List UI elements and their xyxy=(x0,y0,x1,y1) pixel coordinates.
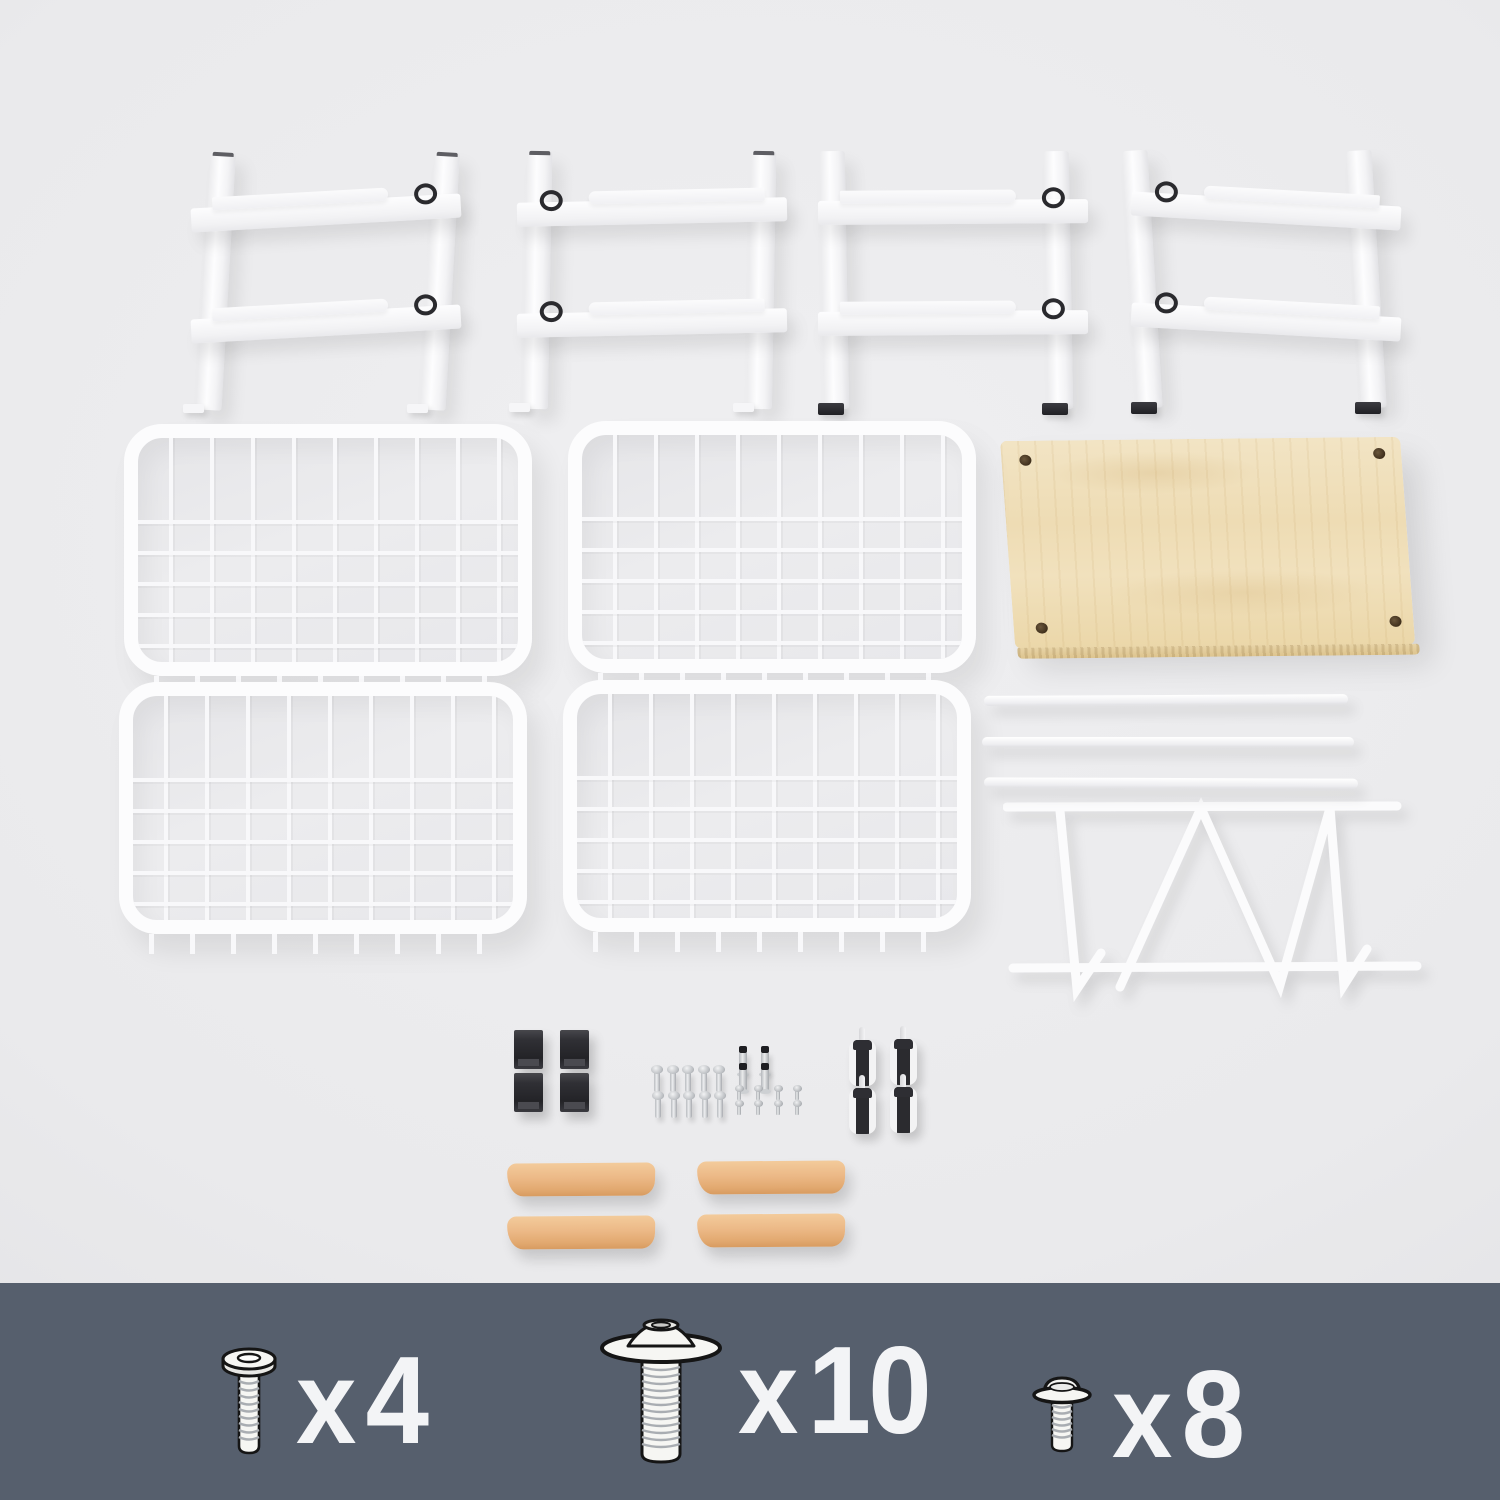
basket-slide-rail xyxy=(589,299,765,316)
legend-item-screw-x4: x 4 xyxy=(218,1339,438,1463)
wire-basket xyxy=(124,424,532,676)
screw-hole xyxy=(1019,455,1032,466)
crossbar-face xyxy=(517,197,787,227)
board-front-edge xyxy=(1017,644,1420,659)
frame-foot xyxy=(1042,403,1068,415)
basket-grid-wires xyxy=(138,520,518,662)
frame-leg xyxy=(1346,150,1386,409)
hook-ring-icon xyxy=(1042,187,1065,208)
basket-rim xyxy=(568,421,976,673)
hook-ring-icon xyxy=(1042,298,1065,319)
caster-wheel xyxy=(890,1087,917,1133)
machine-screw xyxy=(654,1072,660,1092)
wire-divider-rack xyxy=(1003,795,1423,1005)
legend-item-screw-x8: x 8 xyxy=(1030,1353,1254,1477)
hook-ring-icon xyxy=(1154,292,1178,314)
screw-hole xyxy=(1373,448,1386,459)
screw-hole xyxy=(1035,623,1048,634)
qty-count: 10 xyxy=(808,1329,929,1453)
qty-count: 4 xyxy=(366,1339,427,1463)
side-frame xyxy=(815,151,1091,415)
basket-rim xyxy=(124,424,532,676)
crossbar-face xyxy=(818,310,1088,336)
basket-slide-rail xyxy=(840,190,1016,204)
wood-handle xyxy=(507,1162,656,1196)
hardware-legend: x 4 x 10 xyxy=(0,1283,1500,1500)
basket-grid-wires xyxy=(577,776,957,918)
support-rail xyxy=(984,777,1358,788)
black-foot-cap xyxy=(514,1030,543,1069)
machine-screw xyxy=(701,1072,707,1092)
wire-basket xyxy=(119,682,527,934)
machine-screw xyxy=(670,1072,676,1092)
frame-foot xyxy=(1131,402,1157,414)
hook-ring-icon xyxy=(1154,181,1178,203)
crossbar-face xyxy=(517,308,787,338)
basket-grid-wires xyxy=(582,517,962,659)
frame-foot xyxy=(1355,402,1381,414)
legend-item-bolt-x10: x 10 xyxy=(598,1315,946,1467)
hook-ring-icon xyxy=(414,294,438,316)
qty-prefix: x xyxy=(738,1334,798,1452)
screw-hole xyxy=(1389,616,1402,627)
machine-screw xyxy=(655,1098,661,1118)
wood-handle xyxy=(697,1213,846,1247)
frame-foot xyxy=(733,403,754,412)
side-frame xyxy=(1128,150,1404,414)
black-foot-cap xyxy=(560,1073,589,1112)
frame-crossbar xyxy=(818,199,1088,225)
hook-ring-icon xyxy=(540,301,563,322)
wood-handle xyxy=(507,1215,656,1249)
small-screw xyxy=(776,1106,780,1115)
basket-front-wires xyxy=(593,932,941,952)
wire-basket xyxy=(563,680,971,932)
parts-overview-scene: x 4 x 10 xyxy=(0,0,1500,1500)
frame-leg xyxy=(820,151,849,409)
frame-crossbar xyxy=(191,193,462,232)
basket-slide-rail xyxy=(1204,297,1380,320)
machine-screw xyxy=(671,1098,677,1118)
wood-handle xyxy=(697,1160,846,1194)
frame-crossbar xyxy=(1131,191,1402,230)
quantity-label: x 10 xyxy=(738,1329,929,1453)
side-frame xyxy=(514,151,790,415)
support-rail xyxy=(982,737,1354,747)
support-rail xyxy=(984,694,1348,706)
basket-slide-rail xyxy=(589,188,765,205)
basket-grid-wires xyxy=(133,778,513,920)
qty-prefix: x xyxy=(1112,1358,1172,1476)
divider-left-wire xyxy=(1060,811,1101,989)
crossbar-face xyxy=(191,304,462,343)
basket-slide-rail xyxy=(212,299,388,322)
wood-top-board xyxy=(1000,437,1415,649)
basket-slide-rail xyxy=(840,301,1016,315)
hook-ring-icon xyxy=(540,190,563,211)
black-foot-cap xyxy=(514,1073,543,1112)
machine-screw xyxy=(716,1072,722,1092)
pan-head-screw-icon xyxy=(218,1345,280,1457)
frame-crossbar xyxy=(1131,302,1402,341)
qty-prefix: x xyxy=(296,1344,356,1462)
quantity-label: x 8 xyxy=(1112,1353,1242,1477)
frame-foot xyxy=(407,404,428,413)
crossbar-face xyxy=(1131,191,1402,230)
machine-screw xyxy=(702,1098,708,1118)
hook-ring-icon xyxy=(414,183,438,205)
crossbar-face xyxy=(818,199,1088,225)
crossbar-face xyxy=(1131,302,1402,341)
divider-zigzag-wire xyxy=(1120,808,1367,987)
frame-crossbar xyxy=(191,304,462,343)
crossbar-face xyxy=(191,193,462,232)
frame-foot xyxy=(183,404,204,413)
frame-foot xyxy=(818,403,844,415)
basket-rim xyxy=(119,682,527,934)
wire-basket xyxy=(568,421,976,673)
machine-screw xyxy=(717,1098,723,1118)
flange-bolt-icon xyxy=(598,1315,724,1467)
small-screw xyxy=(737,1091,741,1100)
basket-rim xyxy=(563,680,971,932)
small-screw xyxy=(776,1091,780,1100)
frame-crossbar xyxy=(517,197,787,227)
frame-crossbar xyxy=(517,308,787,338)
frame-crossbar xyxy=(818,310,1088,336)
small-flange-screw-icon xyxy=(1030,1374,1094,1456)
frame-leg xyxy=(196,152,235,411)
caster-wheel xyxy=(849,1088,876,1134)
small-screw xyxy=(756,1091,760,1100)
small-screw xyxy=(756,1106,760,1115)
machine-screw xyxy=(685,1072,691,1092)
machine-screw xyxy=(686,1098,692,1118)
black-foot-cap xyxy=(560,1030,589,1069)
basket-front-wires xyxy=(149,934,497,954)
frame-foot xyxy=(509,403,530,412)
side-frame xyxy=(188,152,464,416)
small-screw xyxy=(795,1091,799,1100)
quantity-label: x 4 xyxy=(296,1339,426,1463)
small-screw xyxy=(737,1106,741,1115)
qty-count: 8 xyxy=(1182,1353,1243,1477)
basket-slide-rail xyxy=(212,188,388,211)
small-screw xyxy=(795,1106,799,1115)
